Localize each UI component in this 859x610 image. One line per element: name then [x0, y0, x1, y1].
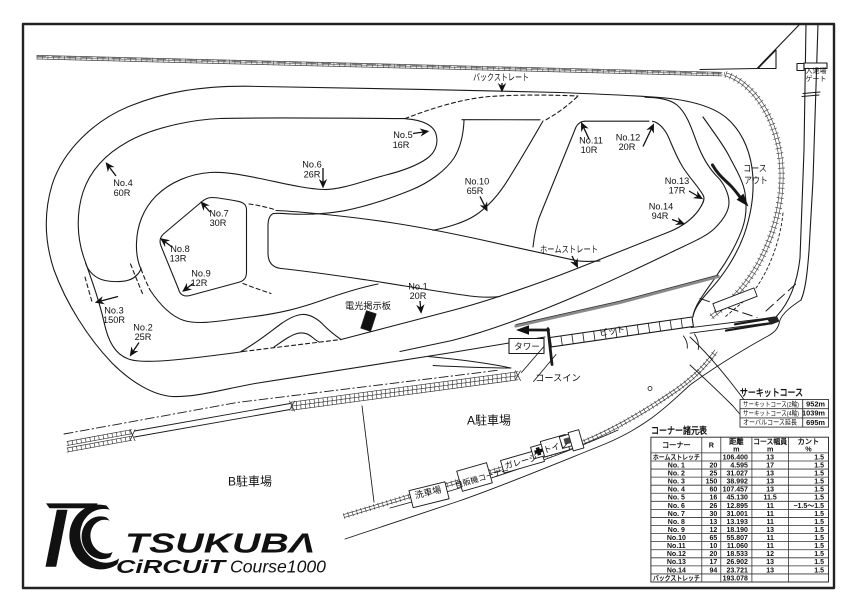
- svg-text:11.5: 11.5: [764, 495, 777, 502]
- svg-text:18.533: 18.533: [726, 551, 748, 558]
- svg-text:30R: 30R: [210, 218, 227, 228]
- svg-text:ホームストレッチ: ホームストレッチ: [653, 453, 700, 461]
- svg-text:サーキットコース: サーキットコース: [740, 387, 803, 399]
- svg-text:No.3: No.3: [104, 306, 123, 316]
- svg-text:1.5: 1.5: [814, 479, 824, 486]
- svg-text:サーキットコース(2輪): サーキットコース(2輪): [743, 399, 799, 408]
- svg-text:17R: 17R: [669, 186, 686, 196]
- svg-text:13: 13: [766, 567, 774, 574]
- svg-text:1039m: 1039m: [802, 409, 825, 418]
- svg-text:150R: 150R: [103, 315, 125, 325]
- svg-text:サーキットコース(4輪): サーキットコース(4輪): [743, 409, 799, 418]
- svg-text:CiRCUiT: CiRCUiT: [116, 556, 227, 577]
- svg-text:1.5: 1.5: [814, 519, 824, 526]
- svg-text:No. 6: No. 6: [668, 503, 685, 510]
- svg-text:No.14: No.14: [667, 567, 686, 574]
- svg-text:1.5: 1.5: [814, 454, 824, 461]
- svg-text:16: 16: [710, 495, 718, 502]
- svg-text:13: 13: [710, 519, 718, 526]
- svg-text:1.5: 1.5: [814, 487, 824, 494]
- svg-text:17: 17: [710, 559, 718, 566]
- svg-text:コーナー諸元表: コーナー諸元表: [651, 424, 707, 437]
- svg-text:20R: 20R: [619, 142, 636, 152]
- svg-text:No.9: No.9: [191, 269, 210, 279]
- svg-text:17: 17: [766, 462, 774, 469]
- svg-text:ホームストレート: ホームストレート: [540, 245, 598, 255]
- svg-text:1.5: 1.5: [814, 470, 824, 477]
- svg-text:60: 60: [710, 487, 718, 494]
- svg-text:No.10: No.10: [667, 535, 686, 542]
- svg-text:45.130: 45.130: [726, 495, 748, 502]
- svg-text:コース: コース: [743, 164, 767, 174]
- svg-text:13: 13: [766, 559, 774, 566]
- svg-text:193.078: 193.078: [723, 575, 748, 582]
- svg-text:65R: 65R: [467, 186, 484, 196]
- svg-text:11.060: 11.060: [727, 543, 748, 550]
- svg-text:1.5: 1.5: [814, 543, 824, 550]
- svg-text:20: 20: [710, 462, 718, 469]
- svg-text:No.11: No.11: [579, 136, 603, 146]
- svg-text:No.5: No.5: [393, 130, 412, 140]
- svg-text:11: 11: [766, 511, 774, 518]
- svg-text:A駐車場: A駐車場: [467, 413, 511, 428]
- svg-text:4.595: 4.595: [730, 462, 748, 469]
- svg-text:25R: 25R: [135, 332, 152, 342]
- svg-text:No.11: No.11: [667, 543, 686, 550]
- svg-text:11: 11: [766, 503, 774, 510]
- svg-text:1.5: 1.5: [814, 535, 824, 542]
- svg-text:13R: 13R: [170, 254, 187, 264]
- svg-text:No. 8: No. 8: [668, 519, 685, 526]
- svg-text:107.457: 107.457: [723, 487, 748, 494]
- svg-text:No.7: No.7: [209, 209, 228, 219]
- svg-text:20: 20: [710, 551, 718, 558]
- svg-text:コーナー: コーナー: [662, 441, 691, 450]
- svg-text:ゲート: ゲート: [806, 74, 827, 83]
- svg-text:695m: 695m: [806, 418, 825, 427]
- svg-text:−1.5〜1.5: −1.5〜1.5: [793, 503, 824, 510]
- svg-text:Course1000: Course1000: [230, 557, 326, 577]
- svg-text:m: m: [733, 445, 739, 454]
- svg-text:31.001: 31.001: [726, 511, 748, 518]
- svg-text:No.8: No.8: [170, 244, 189, 254]
- svg-text:55.807: 55.807: [726, 535, 748, 542]
- svg-text:13: 13: [766, 470, 774, 477]
- svg-text:No. 1: No. 1: [668, 462, 685, 469]
- svg-text:No.12: No.12: [616, 133, 641, 143]
- svg-text:26R: 26R: [304, 170, 321, 180]
- svg-text:No.2: No.2: [133, 323, 152, 333]
- svg-text:バックストレート: バックストレート: [473, 73, 529, 83]
- svg-text:TSUKUBΛ: TSUKUBΛ: [125, 528, 315, 559]
- svg-text:13.193: 13.193: [726, 519, 748, 526]
- svg-text:タワー: タワー: [514, 342, 540, 352]
- svg-text:1.5: 1.5: [814, 462, 824, 469]
- svg-text:12: 12: [766, 551, 774, 558]
- svg-text:26.902: 26.902: [726, 559, 748, 566]
- svg-text:18.190: 18.190: [726, 527, 748, 534]
- svg-text:No.13: No.13: [665, 176, 690, 186]
- svg-text:1.5: 1.5: [814, 559, 824, 566]
- svg-text:20R: 20R: [410, 291, 427, 301]
- svg-text:No.1: No.1: [408, 282, 427, 292]
- svg-text:65: 65: [710, 535, 718, 542]
- svg-text:No. 5: No. 5: [668, 495, 685, 502]
- svg-text:25: 25: [710, 470, 718, 477]
- svg-text:150: 150: [706, 479, 718, 486]
- svg-text:電光掲示板: 電光掲示板: [345, 300, 391, 311]
- svg-text:952m: 952m: [806, 399, 825, 408]
- svg-text:12R: 12R: [191, 278, 208, 288]
- svg-text:%: %: [805, 445, 812, 454]
- svg-text:1.5: 1.5: [814, 495, 824, 502]
- svg-text:No. 7: No. 7: [668, 511, 685, 518]
- svg-text:13: 13: [766, 487, 774, 494]
- svg-text:10: 10: [710, 543, 718, 550]
- svg-text:入退場: 入退場: [806, 66, 827, 75]
- svg-text:No.6: No.6: [302, 160, 321, 170]
- svg-text:23.721: 23.721: [726, 567, 748, 574]
- svg-text:m: m: [767, 445, 773, 454]
- svg-text:10R: 10R: [581, 145, 598, 155]
- svg-text:106.400: 106.400: [723, 454, 748, 461]
- svg-text:コースイン: コースイン: [535, 373, 580, 383]
- svg-text:11: 11: [766, 519, 774, 526]
- svg-text:60R: 60R: [114, 188, 131, 198]
- svg-text:13: 13: [766, 527, 774, 534]
- svg-text:1.5: 1.5: [814, 527, 824, 534]
- svg-text:31.027: 31.027: [726, 470, 748, 477]
- svg-text:No. 4: No. 4: [668, 487, 685, 494]
- svg-text:1.5: 1.5: [814, 511, 824, 518]
- svg-text:No.13: No.13: [667, 559, 686, 566]
- svg-text:12: 12: [710, 527, 718, 534]
- svg-text:1.5: 1.5: [814, 567, 824, 574]
- svg-text:No.4: No.4: [113, 178, 132, 188]
- svg-text:No. 9: No. 9: [668, 527, 685, 534]
- svg-text:No.12: No.12: [667, 551, 686, 558]
- svg-text:No. 3: No. 3: [668, 479, 685, 486]
- svg-text:94: 94: [710, 567, 718, 574]
- svg-text:No.10: No.10: [465, 177, 490, 187]
- svg-text:オーバルコース延長: オーバルコース延長: [743, 418, 797, 427]
- svg-text:38.992: 38.992: [726, 479, 748, 486]
- svg-text:13: 13: [766, 479, 774, 486]
- svg-text:1.5: 1.5: [814, 551, 824, 558]
- svg-text:11: 11: [766, 535, 774, 542]
- svg-text:26: 26: [710, 503, 718, 510]
- svg-text:12.895: 12.895: [726, 503, 748, 510]
- svg-text:13: 13: [766, 454, 774, 461]
- svg-text:バックストレッチ: バックストレッチ: [653, 573, 700, 582]
- svg-text:R: R: [709, 441, 715, 450]
- svg-text:94R: 94R: [652, 211, 669, 221]
- svg-text:16R: 16R: [393, 140, 410, 150]
- svg-text:30: 30: [710, 511, 718, 518]
- svg-text:B駐車場: B駐車場: [228, 474, 272, 489]
- svg-text:No.14: No.14: [649, 202, 674, 212]
- svg-text:11: 11: [766, 543, 774, 550]
- svg-text:アウト: アウト: [744, 176, 768, 186]
- svg-text:No. 2: No. 2: [668, 470, 685, 477]
